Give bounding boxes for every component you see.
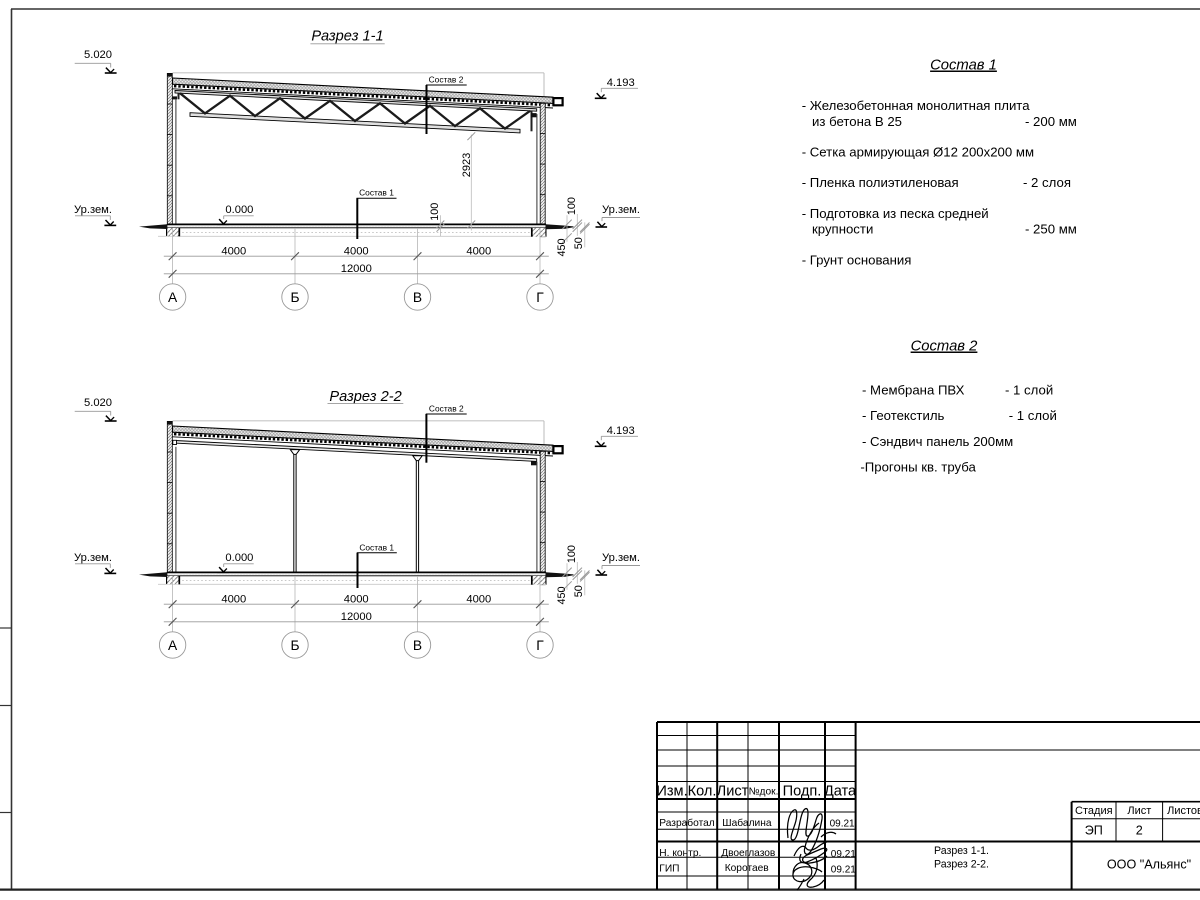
svg-text:450: 450 (556, 586, 568, 604)
svg-text:Б: Б (290, 290, 299, 305)
svg-text:ООО "Альянс": ООО "Альянс" (1107, 858, 1191, 872)
svg-text:0.000: 0.000 (225, 552, 253, 564)
svg-text:Лист: Лист (717, 783, 749, 799)
svg-text:4000: 4000 (466, 246, 491, 258)
svg-text:ГИП: ГИП (659, 864, 679, 875)
svg-text:09.21: 09.21 (831, 849, 856, 860)
svg-text:5.020: 5.020 (84, 397, 112, 409)
svg-text:Г: Г (536, 290, 544, 305)
svg-text:Ур.зем.: Ур.зем. (602, 204, 640, 216)
svg-text:12000: 12000 (341, 263, 372, 275)
svg-text:- 200 мм: - 200 мм (1025, 114, 1077, 129)
svg-text:4000: 4000 (221, 594, 246, 606)
svg-text:Состав 1: Состав 1 (359, 187, 394, 197)
svg-text:450: 450 (556, 238, 568, 256)
svg-text:- Железобетонная монолитная п: - Железобетонная монолитная плита (802, 98, 1031, 113)
svg-text:- 1 слой: - 1 слой (1009, 408, 1057, 423)
svg-text:Лист: Лист (1127, 805, 1151, 817)
svg-text:4.193: 4.193 (607, 77, 635, 89)
svg-text:Изм.: Изм. (656, 783, 687, 799)
svg-text:Листов: Листов (1167, 805, 1200, 817)
svg-text:В: В (413, 638, 422, 653)
svg-text:Разрез 2-2.: Разрез 2-2. (934, 859, 989, 871)
svg-text:Двоеглазов: Двоеглазов (721, 848, 775, 859)
svg-text:4000: 4000 (344, 246, 369, 258)
svg-text:0.000: 0.000 (225, 204, 253, 216)
svg-text:- Сэндвич панель 200мм: - Сэндвич панель 200мм (862, 434, 1013, 449)
svg-text:Дата: Дата (824, 783, 857, 799)
svg-text:А: А (168, 290, 178, 305)
svg-text:50: 50 (573, 237, 585, 249)
svg-text:2: 2 (1136, 823, 1143, 837)
svg-text:Разрез 2-2: Разрез 2-2 (329, 389, 401, 405)
svg-text:Разработал: Разработал (659, 817, 715, 829)
svg-text:№док.: №док. (749, 787, 779, 798)
svg-text:- 250 мм: - 250 мм (1025, 222, 1077, 237)
svg-text:- Грунт основания: - Грунт основания (802, 252, 912, 267)
svg-text:Ур.зем.: Ур.зем. (74, 552, 112, 564)
svg-text:Состав 1: Состав 1 (359, 543, 394, 553)
svg-text:4000: 4000 (221, 246, 246, 258)
svg-text:- Пленка полиэтиленовая: - Пленка полиэтиленовая (802, 175, 959, 190)
svg-text:50: 50 (573, 585, 585, 597)
svg-text:крупности: крупности (812, 222, 873, 237)
svg-text:100: 100 (566, 197, 578, 215)
svg-text:09.21: 09.21 (830, 818, 855, 829)
svg-text:-Прогоны кв. труба: -Прогоны кв. труба (860, 460, 976, 475)
svg-text:4000: 4000 (466, 594, 491, 606)
svg-text:2923: 2923 (461, 153, 473, 177)
svg-text:5.020: 5.020 (84, 49, 112, 61)
svg-text:Ур.зем.: Ур.зем. (74, 204, 112, 216)
svg-text:12000: 12000 (341, 611, 372, 623)
svg-text:ЭП: ЭП (1085, 823, 1103, 837)
svg-text:Подп.: Подп. (783, 783, 822, 799)
svg-text:Разрез 1-1: Разрез 1-1 (311, 29, 383, 45)
svg-text:Кол.: Кол. (688, 783, 717, 799)
svg-text:Шабалина: Шабалина (722, 817, 772, 829)
svg-text:Стадия: Стадия (1075, 805, 1113, 817)
svg-text:Состав 1: Состав 1 (930, 58, 997, 74)
svg-text:Ур.зем.: Ур.зем. (602, 552, 640, 564)
svg-text:Коротаев: Коротаев (725, 863, 769, 874)
svg-text:А: А (168, 638, 178, 653)
svg-text:Б: Б (290, 638, 299, 653)
svg-text:09.21: 09.21 (831, 864, 856, 875)
svg-text:4000: 4000 (344, 594, 369, 606)
svg-text:100: 100 (429, 203, 441, 221)
svg-text:В: В (413, 290, 422, 305)
svg-text:- Мембрана ПВХ: - Мембрана ПВХ (862, 383, 965, 398)
svg-text:Г: Г (536, 638, 544, 653)
svg-text:100: 100 (566, 545, 578, 563)
svg-text:Состав 2: Состав 2 (429, 74, 464, 84)
svg-text:из бетона В 25: из бетона В 25 (812, 114, 902, 129)
svg-text:Состав 2: Состав 2 (429, 403, 464, 413)
svg-text:- Подготовка из песка средней: - Подготовка из песка средней (802, 206, 989, 221)
svg-text:4.193: 4.193 (607, 425, 635, 437)
svg-text:- 2 слоя: - 2 слоя (1023, 175, 1071, 190)
svg-text:Разрез 1-1.: Разрез 1-1. (934, 845, 989, 857)
svg-text:Состав 2: Состав 2 (911, 339, 979, 355)
svg-text:- 1 слой: - 1 слой (1005, 383, 1053, 398)
svg-text:- Сетка армирующая Ø12 200х200: - Сетка армирующая Ø12 200х200 мм (802, 145, 1034, 160)
svg-text:- Геотекстиль: - Геотекстиль (862, 408, 945, 423)
svg-text:Н. контр.: Н. контр. (659, 848, 701, 859)
